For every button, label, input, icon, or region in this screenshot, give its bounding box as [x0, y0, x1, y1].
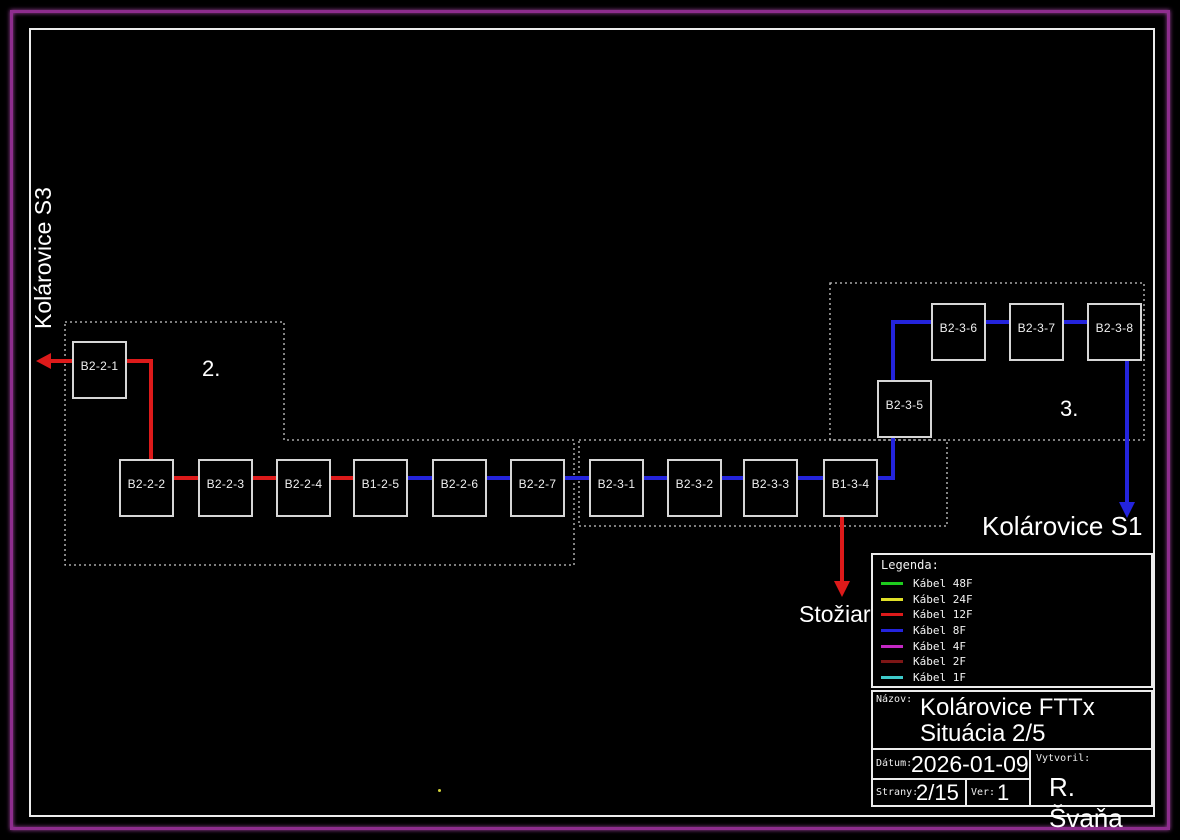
node-B2-2-2[interactable]: B2-2-2 [119, 459, 174, 517]
drawing-date: 2026-01-09 [911, 751, 1029, 778]
node-B2-2-3[interactable]: B2-2-3 [198, 459, 253, 517]
cable-color-swatch [881, 598, 903, 601]
cable-color-swatch [881, 660, 903, 663]
legend-box: Legenda: Kábel 48FKábel 24FKábel 12FKábe… [871, 553, 1153, 688]
cable-color-swatch [881, 629, 903, 632]
drawing-title-line1: Kolárovice FTTx [920, 695, 1095, 721]
node-B2-3-8[interactable]: B2-3-8 [1087, 303, 1142, 361]
node-B2-3-7[interactable]: B2-3-7 [1009, 303, 1064, 361]
node-B2-3-1[interactable]: B2-3-1 [589, 459, 644, 517]
label-kolarovice-s1: Kolárovice S1 [982, 511, 1142, 542]
node-B2-3-3[interactable]: B2-3-3 [743, 459, 798, 517]
legend-item-label: Kábel 1F [913, 671, 966, 684]
drawing-title: Kolárovice FTTx Situácia 2/5 [920, 695, 1095, 747]
cable-color-swatch [881, 676, 903, 679]
legend-item: Kábel 2F [881, 654, 1145, 670]
legend-item: Kábel 48F [881, 576, 1145, 592]
label-stoziar: Stožiar [799, 601, 871, 628]
label-kolarovice-s3: Kolárovice S3 [28, 178, 58, 338]
legend-item-label: Kábel 8F [913, 624, 966, 637]
legend-item-label: Kábel 24F [913, 593, 973, 606]
name-field-label: Názov: [876, 694, 912, 705]
pages-field-label: Strany: [876, 787, 918, 798]
cable-color-swatch [881, 613, 903, 616]
title-block-name-cell: Názov: Kolárovice FTTx Situácia 2/5 [873, 692, 1151, 750]
date-field-label: Dátum: [876, 758, 912, 769]
legend-item: Kábel 12F [881, 607, 1145, 623]
cable-color-swatch [881, 582, 903, 585]
node-B2-2-6[interactable]: B2-2-6 [432, 459, 487, 517]
legend-item: Kábel 24F [881, 592, 1145, 608]
author-field-label: Vytvoril: [1036, 753, 1090, 764]
legend-item-label: Kábel 48F [913, 577, 973, 590]
node-B1-3-4[interactable]: B1-3-4 [823, 459, 878, 517]
label-area-2: 2. [202, 356, 220, 382]
drawing-author: R. Švaňa [1049, 772, 1151, 834]
node-B2-2-7[interactable]: B2-2-7 [510, 459, 565, 517]
legend-item: Kábel 4F [881, 638, 1145, 654]
node-B2-3-2[interactable]: B2-3-2 [667, 459, 722, 517]
drawing-title-line2: Situácia 2/5 [920, 721, 1095, 747]
label-area-3: 3. [1060, 396, 1078, 422]
title-block: Názov: Kolárovice FTTx Situácia 2/5 Dátu… [871, 690, 1153, 807]
page-number: 2/15 [916, 780, 959, 806]
drawing-sheet: B2-2-1B2-2-2B2-2-3B2-2-4B1-2-5B2-2-6B2-2… [0, 0, 1180, 840]
legend-item-label: Kábel 12F [913, 608, 973, 621]
cable-color-swatch [881, 645, 903, 648]
arrow-to-kolarovice-s3 [36, 353, 51, 369]
title-block-pages-cell: Strany: 2/15 [873, 780, 967, 805]
node-B2-3-5[interactable]: B2-3-5 [877, 380, 932, 438]
version-number: 1 [997, 780, 1009, 806]
version-field-label: Ver: [971, 787, 995, 798]
legend-items: Kábel 48FKábel 24FKábel 12FKábel 8FKábel… [881, 576, 1145, 685]
node-B2-2-4[interactable]: B2-2-4 [276, 459, 331, 517]
legend-item: Kábel 8F [881, 623, 1145, 639]
legend-item: Kábel 1F [881, 670, 1145, 686]
legend-item-label: Kábel 4F [913, 640, 966, 653]
legend-title: Legenda: [881, 558, 939, 572]
legend-item-label: Kábel 2F [913, 655, 966, 668]
node-B2-2-1[interactable]: B2-2-1 [72, 341, 127, 399]
title-block-version-cell: Ver: 1 [967, 780, 1031, 805]
stray-point-marker [438, 789, 441, 792]
title-block-author-cell: Vytvoril: R. Švaňa [1031, 750, 1151, 805]
node-B1-2-5[interactable]: B1-2-5 [353, 459, 408, 517]
node-B2-3-6[interactable]: B2-3-6 [931, 303, 986, 361]
dashed-region-area-2 [65, 322, 574, 565]
arrow-to-stoziar [834, 581, 850, 597]
title-block-date-cell: Dátum: 2026-01-09 [873, 750, 1031, 780]
